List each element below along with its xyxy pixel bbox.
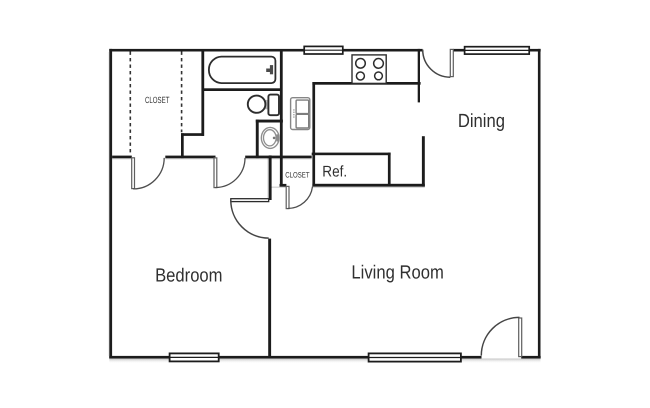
svg-text:Dining: Dining [458, 111, 505, 132]
svg-text:CLOSET: CLOSET [145, 95, 170, 105]
svg-text:Living Room: Living Room [351, 263, 443, 284]
svg-text:Ref.: Ref. [322, 164, 347, 181]
svg-text:CLOSET: CLOSET [285, 170, 310, 179]
svg-text:Bedroom: Bedroom [155, 265, 222, 286]
